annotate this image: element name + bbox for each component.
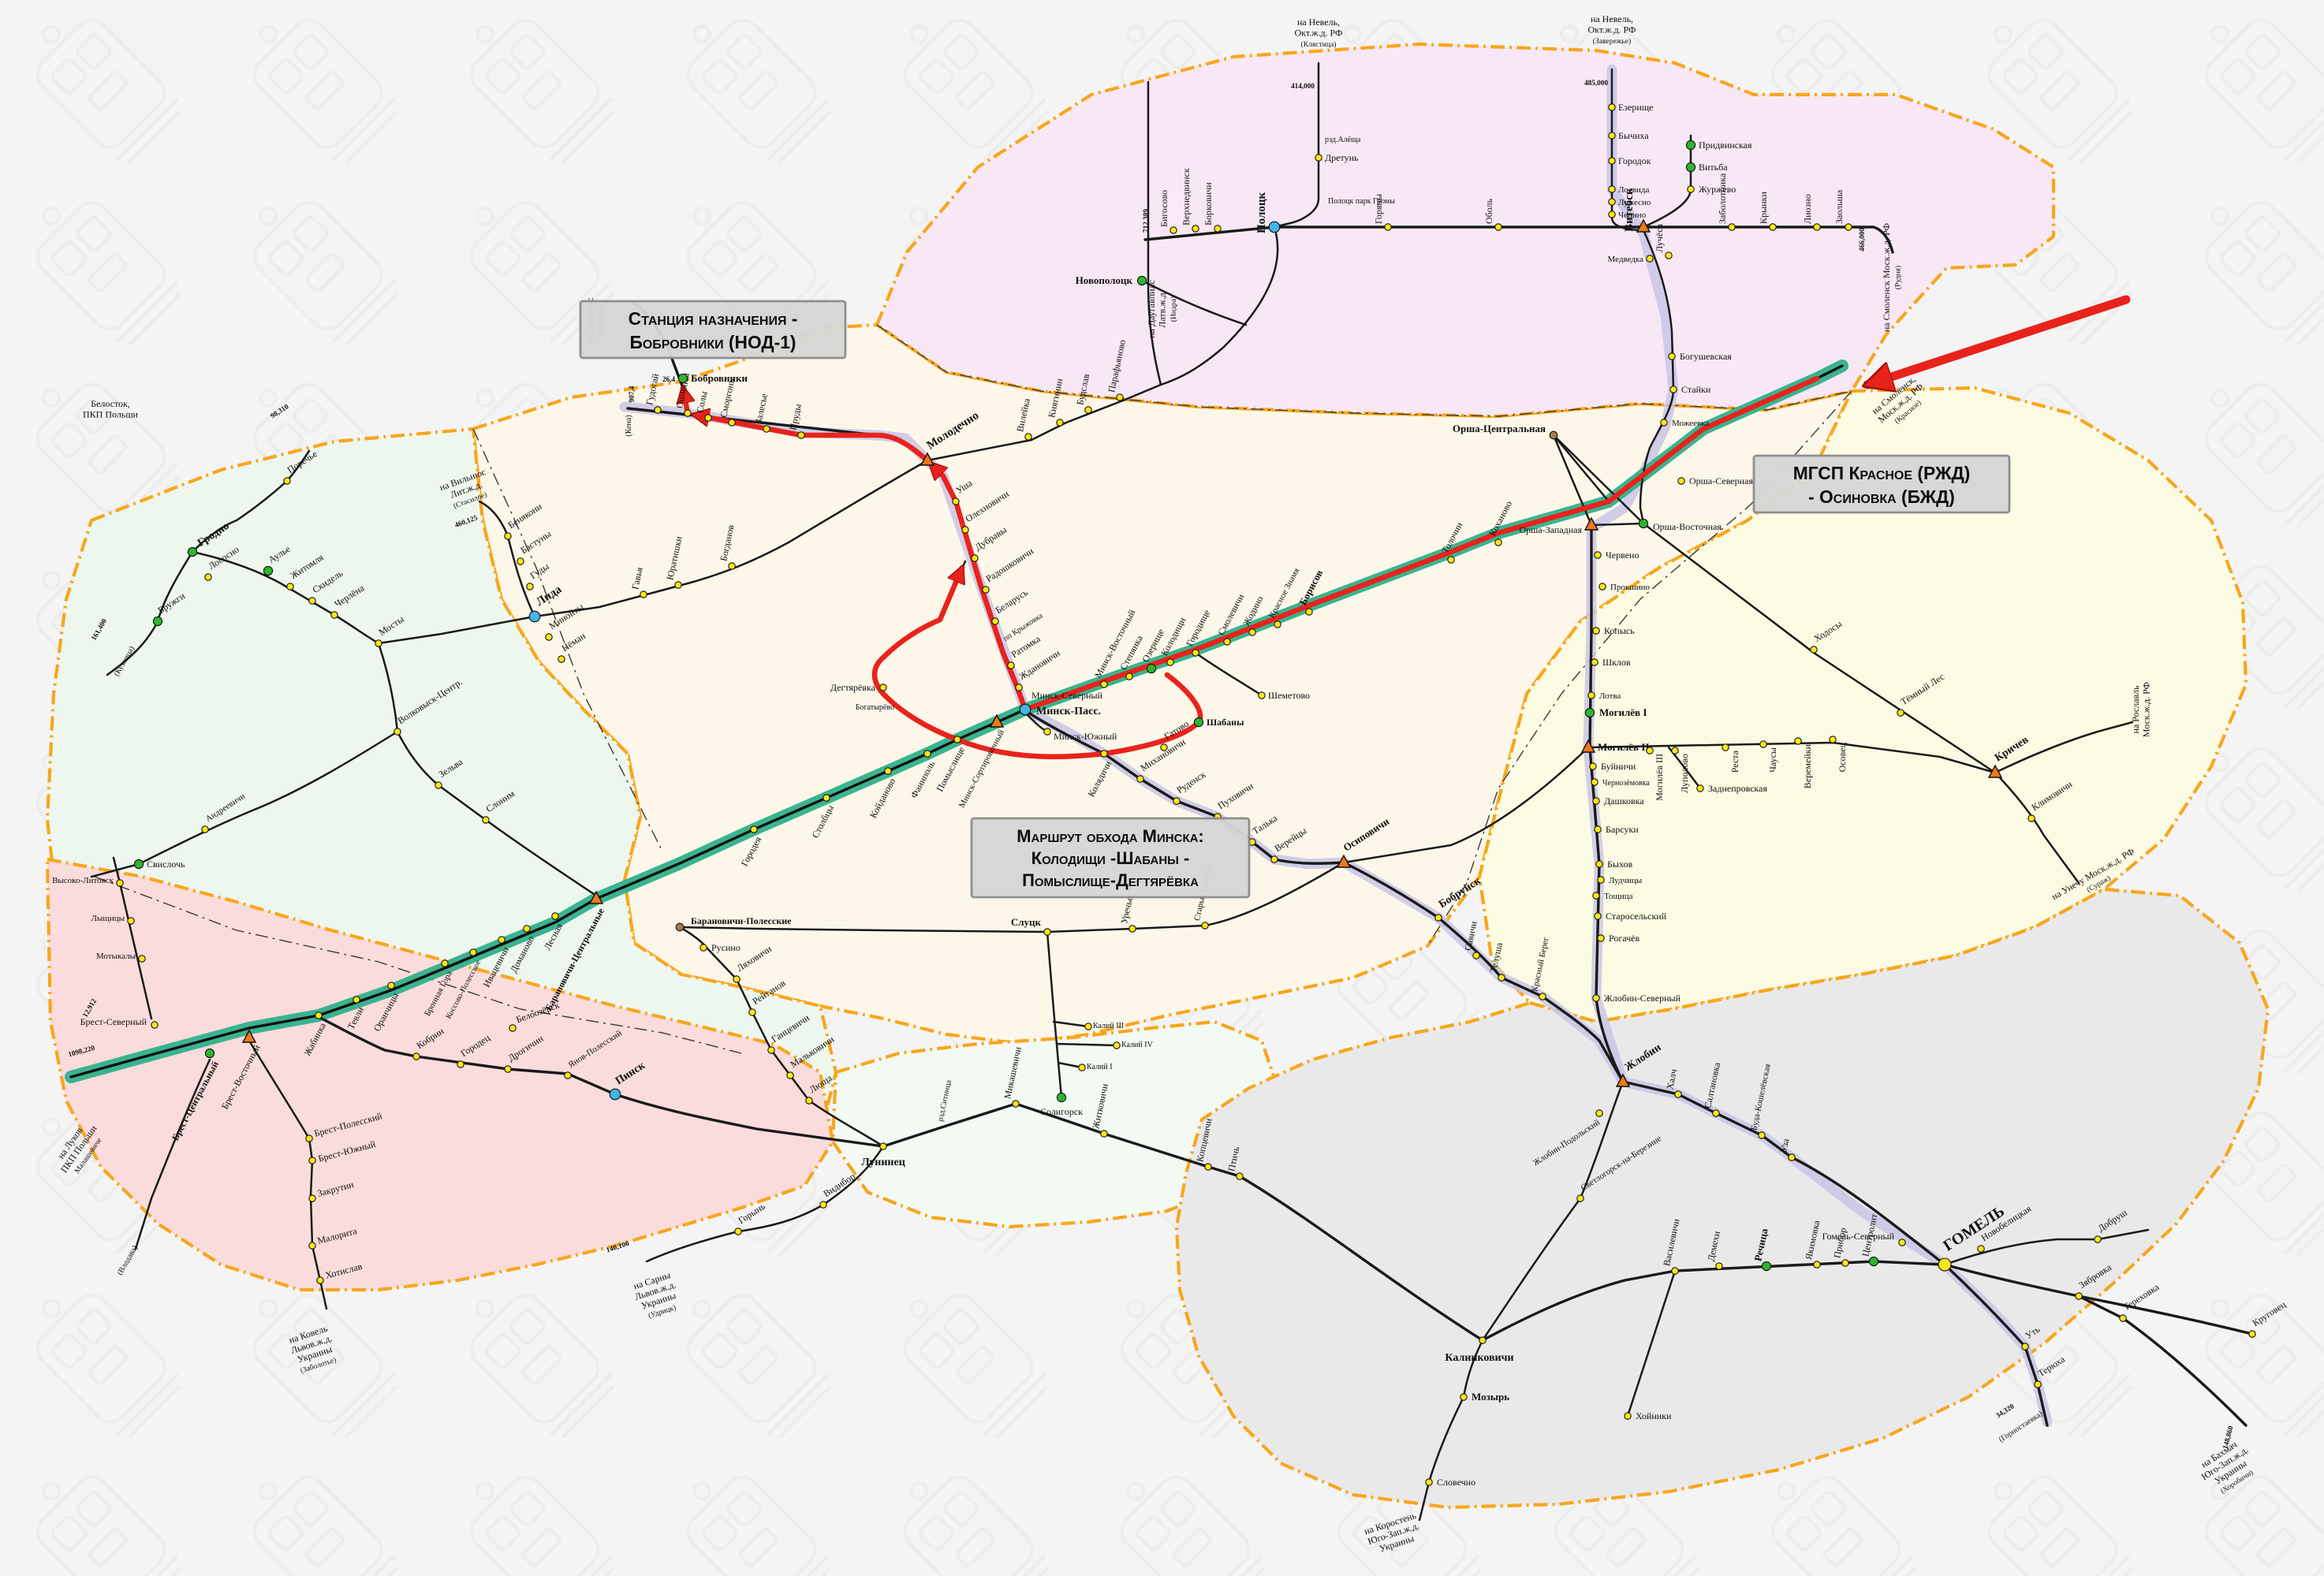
- station-dot: [1672, 1268, 1678, 1274]
- station-dot: [2095, 1236, 2101, 1243]
- station-dot: [1101, 681, 1107, 687]
- station-dot: [735, 1228, 741, 1235]
- station-dot: [1426, 1479, 1432, 1485]
- station-label: Червено: [1606, 550, 1639, 561]
- station-dot: [1595, 913, 1601, 919]
- station-label: Прокшино: [1610, 583, 1651, 592]
- station-dot: [1595, 552, 1601, 558]
- station-dot: [1938, 1258, 1951, 1271]
- station-dot: [287, 583, 293, 590]
- station-dot: [1137, 776, 1143, 782]
- station-label: Лыщицы: [91, 914, 125, 923]
- station-dot: [1385, 224, 1391, 230]
- station-dot: [1591, 659, 1598, 665]
- station-dot: [675, 582, 681, 588]
- station-dot: [1845, 224, 1852, 230]
- station-dot: [284, 478, 290, 484]
- station-dot: [1609, 199, 1615, 205]
- station-dot: [1085, 1023, 1091, 1030]
- station-dot: [353, 997, 360, 1003]
- station-label: Орша-Северная: [1689, 475, 1753, 486]
- station-dot: [1697, 785, 1703, 792]
- station-label: Высоко-Литовск: [52, 876, 114, 885]
- callout-destination: Станция назначения - Бобровники (НОД-1): [580, 301, 845, 358]
- station-dot: [1016, 684, 1022, 691]
- station-dot: [1044, 929, 1050, 935]
- station-dot: [1008, 662, 1014, 669]
- station-dot: [375, 640, 382, 646]
- station-dot: [1678, 478, 1684, 484]
- station-dot: [610, 1089, 621, 1100]
- station-dot: [331, 612, 338, 618]
- station-dot: [1639, 519, 1647, 527]
- station-dot: [880, 684, 886, 691]
- station-dot: [498, 937, 505, 943]
- station-dot: [1274, 621, 1281, 628]
- station-label: Дашковка: [1604, 795, 1644, 807]
- station-dot: [1192, 650, 1199, 656]
- station-label: Лотва: [1599, 691, 1621, 701]
- station-label: Солигорск: [1040, 1106, 1083, 1117]
- station-label: Минск-Пасс.: [1036, 706, 1101, 717]
- station-label: Чаусы: [1767, 747, 1778, 773]
- station-dot: [1539, 993, 1546, 1000]
- station-label: Новополоцк: [1076, 274, 1133, 286]
- station-dot: [1173, 798, 1180, 804]
- station-dot: [1101, 751, 1107, 757]
- station-dot: [1085, 407, 1091, 413]
- station-dot: [134, 859, 143, 868]
- station-label: Богушевская: [1680, 351, 1732, 362]
- station-dot: [992, 618, 998, 624]
- station-dot: [685, 410, 691, 416]
- station-dot: [435, 782, 442, 788]
- station-dot: [1722, 744, 1729, 751]
- station-label: Буйничи: [1601, 761, 1636, 772]
- callout-bypass-line1: Маршрут обхода Минска:: [1017, 826, 1204, 846]
- station-dot: [128, 918, 134, 924]
- station-label: Старосельский: [1606, 911, 1667, 922]
- station-label: Дретунь: [1325, 152, 1359, 163]
- station-dot: [1550, 431, 1557, 439]
- station-dot: [470, 949, 476, 956]
- station-dot: [1598, 935, 1604, 941]
- km-mark: 26,4: [662, 375, 675, 383]
- station-dot: [763, 426, 770, 432]
- station-label: Заольша: [1833, 189, 1845, 224]
- callout-destination-line1: Станция назначения -: [629, 308, 798, 329]
- station-dot: [751, 826, 757, 833]
- station-dot: [527, 583, 533, 590]
- station-dot: [1205, 1164, 1211, 1170]
- station-label: Можеевка: [1672, 419, 1709, 428]
- station-dot: [1147, 664, 1155, 673]
- station-label: Лиозно: [1802, 194, 1813, 224]
- station-dot: [1729, 224, 1735, 230]
- station-label: Мозырь: [1472, 1391, 1509, 1403]
- station-dot: [153, 617, 162, 625]
- station-dot: [953, 498, 959, 505]
- station-dot: [1588, 692, 1595, 699]
- station-dot: [1137, 276, 1146, 285]
- station-label: рзд.Алёща: [1325, 136, 1361, 144]
- station-dot: [1595, 826, 1601, 833]
- station-label: Могилёв I: [1599, 706, 1647, 718]
- station-dot: [1224, 639, 1230, 645]
- station-dot: [1593, 628, 1599, 634]
- station-dot: [1448, 557, 1454, 563]
- station-dot: [962, 527, 968, 533]
- station-dot: [1713, 1110, 1719, 1116]
- station-dot: [820, 1202, 826, 1208]
- station-dot: [517, 558, 524, 564]
- station-label: Бобровники: [691, 372, 748, 384]
- station-label: Шабаны: [1207, 717, 1244, 728]
- station-dot: [505, 533, 511, 539]
- station-dot: [1114, 1042, 1120, 1049]
- station-dot: [1688, 186, 1694, 192]
- station-dot: [733, 976, 740, 982]
- station-dot: [1666, 252, 1672, 259]
- station-label: Шеметово: [1268, 690, 1310, 701]
- station-dot: [1167, 659, 1173, 665]
- callout-destination-line2: Бобровники (НОД-1): [629, 332, 796, 352]
- station-label: Лунинец: [861, 1157, 905, 1168]
- station-dot: [442, 960, 448, 967]
- station-dot: [1473, 952, 1479, 959]
- station-dot: [1495, 224, 1501, 230]
- station-dot: [1237, 1173, 1243, 1179]
- station-dot: [678, 374, 687, 382]
- station-dot: [1577, 1195, 1584, 1202]
- station-dot: [388, 982, 394, 989]
- station-label: Лудчицы: [1609, 876, 1643, 885]
- station-dot: [139, 956, 145, 962]
- station-dot: [1498, 974, 1505, 981]
- station-label: Чепино: [1618, 211, 1647, 220]
- station-dot: [676, 923, 684, 931]
- station-label: Орша-Центральная: [1453, 423, 1546, 434]
- station-dot: [1079, 1064, 1085, 1071]
- station-dot: [1044, 728, 1050, 735]
- station-dot: [1585, 708, 1594, 717]
- station-dot: [1126, 673, 1132, 680]
- station-dot: [1686, 140, 1695, 149]
- station-label: Свислочь: [147, 859, 185, 870]
- station-label: Лучёса: [1654, 223, 1665, 252]
- station-dot: [1675, 1091, 1681, 1097]
- station-dot: [306, 1135, 312, 1142]
- station-dot: [546, 634, 552, 640]
- station-dot: [263, 566, 272, 575]
- station-dot: [1814, 224, 1820, 230]
- station-label: Калий III: [1093, 1022, 1124, 1030]
- railway-map: ПолоцкНовополоцкПолоцк парк ГромыДретунь…: [0, 0, 2324, 1576]
- station-dot: [1202, 922, 1208, 929]
- station-dot: [1192, 225, 1199, 232]
- station-label: Могилёв III: [1654, 754, 1665, 801]
- edge-label: (Кена): [625, 415, 633, 436]
- station-dot: [565, 1072, 571, 1079]
- station-label: Лужесно: [1618, 198, 1651, 207]
- station-label: Полоцк парк Громы: [1328, 197, 1395, 206]
- station-dot: [457, 1061, 464, 1067]
- station-dot: [529, 611, 540, 622]
- station-dot: [1599, 583, 1606, 590]
- station-label: Могилёв II: [1598, 741, 1649, 753]
- callout-border-crossing-line2: - Осиновка (БЖД): [1808, 486, 1955, 507]
- callout-border-crossing-line1: МГСП Красное (РЖД): [1793, 463, 1971, 483]
- station-label: Луполово: [1679, 754, 1690, 793]
- station-dot: [2028, 815, 2035, 822]
- station-dot: [1271, 856, 1278, 863]
- station-dot: [509, 1025, 516, 1031]
- station-dot: [524, 926, 530, 932]
- callout-bypass-line2: Колодищи -Шабаны -: [1031, 848, 1190, 868]
- station-dot: [1249, 629, 1255, 635]
- station-label: Чернозёмовка: [1602, 779, 1650, 788]
- station-dot: [983, 587, 989, 593]
- station-dot: [1315, 155, 1322, 161]
- station-dot: [1770, 224, 1776, 230]
- station-dot: [483, 817, 489, 823]
- edge-label: на РославльМоск.ж.д. РФ: [2130, 682, 2151, 737]
- station-dot: [768, 1047, 774, 1053]
- station-dot: [1811, 646, 1817, 653]
- station-label: Реста: [1729, 750, 1740, 773]
- station-label: Медведка: [1608, 255, 1644, 264]
- station-dot: [954, 736, 961, 743]
- station-dot: [1899, 1239, 1905, 1246]
- station-dot: [1670, 386, 1677, 393]
- station-label: Заднепровская: [1708, 783, 1768, 794]
- station-dot: [972, 555, 978, 561]
- station-dot: [640, 591, 647, 598]
- station-dot: [1897, 710, 1904, 716]
- station-dot: [2249, 1331, 2255, 1337]
- station-dot: [1842, 1260, 1848, 1266]
- station-label: Заболотника: [1717, 173, 1728, 224]
- station-dot: [315, 1012, 322, 1019]
- station-label: Барсуки: [1606, 824, 1639, 835]
- station-label: Калий I: [1087, 1063, 1113, 1071]
- station-dot: [1117, 394, 1123, 401]
- station-label: Быхов: [1607, 859, 1632, 870]
- station-label: Рогачёв: [1609, 933, 1640, 944]
- station-dot: [2022, 1343, 2028, 1350]
- station-dot: [552, 913, 558, 919]
- station-label: Хойники: [1636, 1410, 1672, 1421]
- station-label: Орша-Западная: [1519, 524, 1582, 535]
- edge-label: на Невель,Окт.ж.д. РФ(Завережье): [1587, 13, 1636, 46]
- station-dot: [2120, 1315, 2126, 1321]
- station-dot: [1479, 1337, 1486, 1343]
- station-dot: [1789, 1154, 1795, 1161]
- km-mark: 907,4: [628, 386, 636, 402]
- station-dot: [1495, 539, 1501, 546]
- station-label: Минск-Южный: [1054, 731, 1117, 742]
- station-label: Осовец: [1837, 742, 1848, 772]
- station-dot: [655, 407, 661, 413]
- km-mark: 485,000: [1584, 79, 1608, 87]
- station-dot: [1672, 747, 1678, 754]
- station-dot: [1306, 609, 1312, 615]
- station-dot: [1759, 1132, 1765, 1138]
- station-label: Копысь: [1604, 625, 1635, 636]
- station-dot: [1716, 1263, 1722, 1269]
- station-label: Верхнедвинск: [1181, 168, 1192, 225]
- station-dot: [798, 432, 804, 438]
- station-dot: [806, 1097, 812, 1104]
- station-label: Шклов: [1602, 657, 1631, 668]
- station-label: Бигосово: [1158, 190, 1169, 227]
- station-dot: [1814, 1261, 1820, 1268]
- station-label: Минск-Северный: [1031, 690, 1103, 701]
- station-dot: [1435, 915, 1442, 921]
- station-dot: [2076, 1293, 2082, 1299]
- station-dot: [1830, 736, 1836, 743]
- station-dot: [1598, 877, 1604, 883]
- station-label: Богатырёво: [856, 703, 894, 712]
- station-dot: [823, 795, 830, 801]
- station-dot: [1609, 132, 1615, 139]
- station-label: Калинковичи: [1445, 1352, 1513, 1364]
- station-dot: [1661, 419, 1667, 426]
- station-dot: [309, 1243, 315, 1249]
- station-label: Словечно: [1437, 1477, 1475, 1488]
- station-dot: [505, 1066, 511, 1072]
- station-dot: [205, 1049, 214, 1057]
- station-label: Полоцк: [1255, 192, 1268, 233]
- station-dot: [1625, 1413, 1631, 1419]
- km-mark: 414,000: [1291, 82, 1315, 90]
- station-label: Борковичи: [1203, 182, 1214, 225]
- station-label: Езерище: [1618, 102, 1653, 113]
- station-dot: [1760, 741, 1766, 747]
- station-dot: [1214, 225, 1221, 232]
- station-dot: [205, 574, 211, 580]
- station-label: Орша-Восточная: [1653, 521, 1722, 532]
- station-dot: [1590, 763, 1596, 769]
- station-label: Дегтярёвка: [830, 682, 876, 693]
- edge-label: на Невель,Окт.ж.д. РФ(Клястица): [1294, 17, 1342, 49]
- station-dot: [1129, 926, 1136, 932]
- station-dot: [1170, 227, 1177, 233]
- station-dot: [1869, 1257, 1878, 1265]
- callout-border-crossing: МГСП Красное (РЖД) - Осиновка (БЖД): [1754, 456, 2009, 512]
- station-label: Русино: [711, 942, 740, 953]
- station-dot: [202, 826, 208, 833]
- station-dot: [1593, 892, 1599, 899]
- station-label: Лосвида: [1618, 185, 1650, 195]
- station-label: Брест-Северный: [80, 1016, 147, 1027]
- station-label: Горяны: [1373, 194, 1384, 224]
- station-label: Бычиха: [1618, 130, 1649, 141]
- station-dot: [729, 563, 735, 569]
- station-dot: [1593, 995, 1599, 1001]
- station-dot: [1609, 104, 1615, 110]
- station-dot: [309, 598, 315, 604]
- station-dot: [1596, 1110, 1602, 1116]
- station-label: Гомель-Северный: [1822, 1231, 1895, 1242]
- station-label: Тощица: [1604, 892, 1633, 901]
- station-dot: [1669, 353, 1675, 360]
- station-dot: [2035, 1381, 2041, 1388]
- station-label: Крынки: [1758, 192, 1769, 224]
- station-label: Жлобин-Северный: [1604, 993, 1681, 1004]
- station-dot: [1795, 738, 1801, 744]
- station-label: Оболь: [1483, 198, 1494, 224]
- station-dot: [880, 1143, 886, 1149]
- station-dot: [1101, 1131, 1107, 1137]
- station-label: Мотыкалы: [96, 952, 136, 961]
- station-dot: [151, 1022, 158, 1028]
- station-dot: [1020, 704, 1031, 715]
- station-label: Городок: [1618, 155, 1651, 166]
- station-dot: [1978, 1246, 1984, 1252]
- station-dot: [1762, 1261, 1770, 1270]
- station-label: Веремейки: [1802, 743, 1813, 788]
- station-dot: [1269, 222, 1280, 233]
- station-dot: [885, 768, 891, 774]
- station-dot: [1596, 861, 1602, 867]
- station-dot: [309, 1157, 315, 1164]
- station-label: Витьба: [1699, 162, 1728, 173]
- km-mark: 466,000: [1858, 228, 1866, 251]
- station-label: Барановичи-Полесские: [691, 915, 792, 926]
- station-dot: [309, 1195, 315, 1202]
- station-dot: [1259, 692, 1265, 699]
- station-dot: [1591, 779, 1598, 785]
- station-dot: [1057, 1093, 1065, 1101]
- station-label: Калий IV: [1121, 1041, 1154, 1049]
- station-label: Придвинская: [1699, 140, 1752, 151]
- station-label: Слуцк: [1011, 916, 1042, 928]
- station-dot: [749, 1009, 755, 1015]
- station-dot: [1460, 1394, 1467, 1400]
- station-dot: [188, 547, 196, 556]
- callout-bypass: Маршрут обхода Минска: Колодищи -Шабаны …: [972, 818, 1249, 897]
- station-dot: [1609, 158, 1615, 164]
- station-label: Стайки: [1681, 384, 1711, 395]
- station-dot: [394, 728, 401, 735]
- callout-bypass-line3: Помыслище-Дегтярёвка: [1022, 870, 1199, 890]
- station-dot: [1647, 747, 1653, 754]
- station-dot: [705, 415, 711, 421]
- station-dot: [787, 1072, 793, 1079]
- km-mark: 712,389: [1142, 209, 1150, 233]
- station-dot: [1686, 162, 1695, 171]
- station-dot: [1593, 798, 1599, 804]
- station-dot: [1647, 255, 1653, 262]
- station-dot: [924, 751, 931, 757]
- station-dot: [729, 419, 735, 426]
- station-dot: [558, 656, 565, 662]
- station-dot: [1609, 186, 1615, 192]
- station-dot: [1025, 434, 1031, 440]
- station-dot: [117, 880, 123, 886]
- station-dot: [1609, 211, 1615, 218]
- station-dot: [1194, 717, 1203, 726]
- station-dot: [1013, 1101, 1019, 1107]
- station-dot: [1057, 419, 1063, 426]
- station-dot: [317, 1277, 323, 1284]
- station-dot: [413, 1053, 420, 1060]
- station-dot: [700, 944, 707, 951]
